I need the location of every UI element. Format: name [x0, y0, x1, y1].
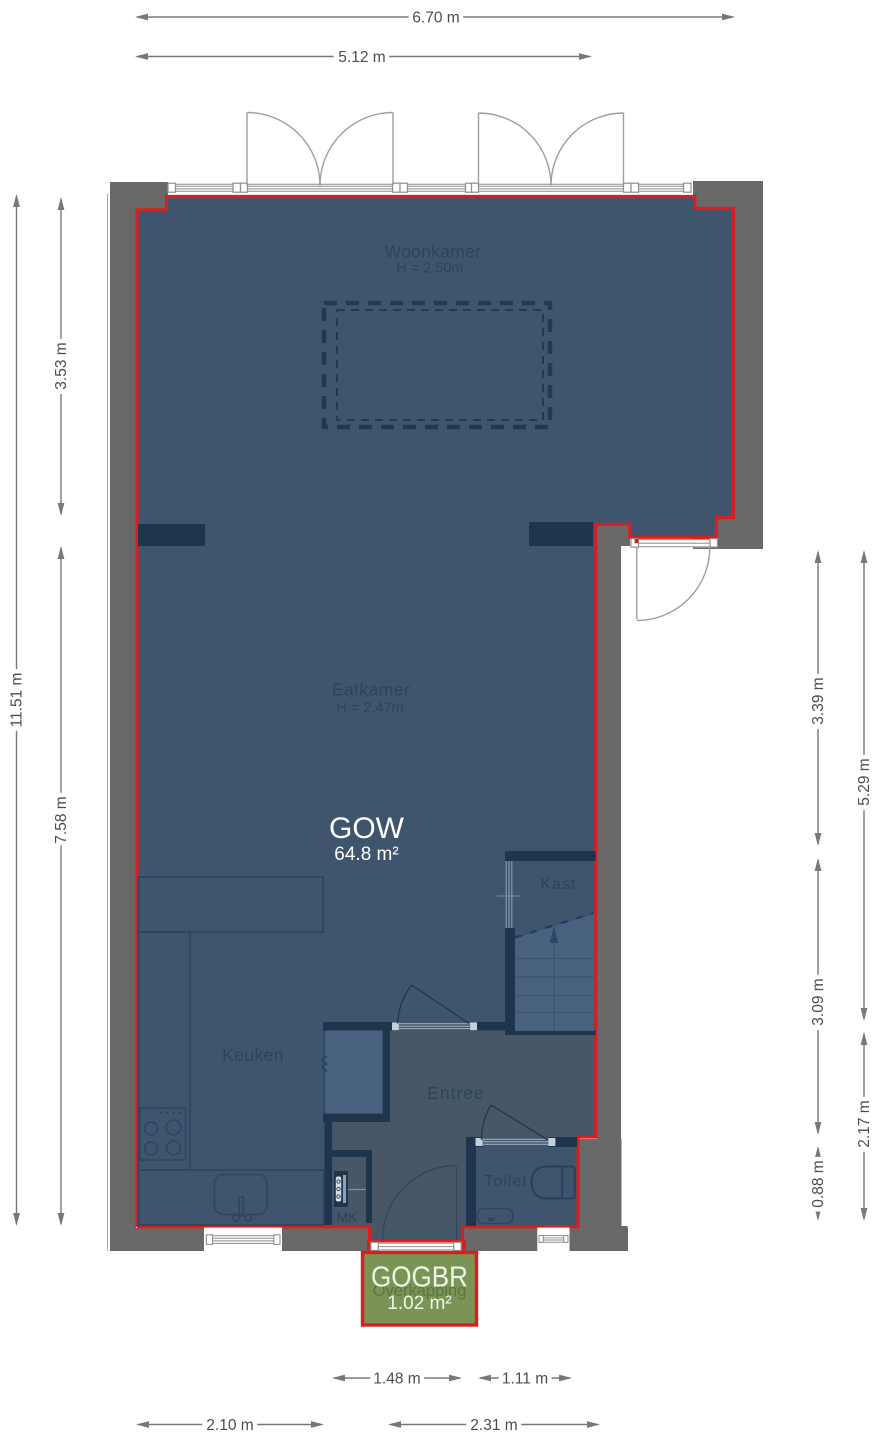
- svg-text:Kast: Kast: [540, 876, 576, 893]
- svg-text:1.11 m: 1.11 m: [502, 1371, 548, 1388]
- svg-text:2.31 m: 2.31 m: [470, 1417, 517, 1434]
- svg-text:Entree: Entree: [427, 1083, 485, 1103]
- svg-text:3.09 m: 3.09 m: [810, 978, 827, 1025]
- svg-text:Woonkamer: Woonkamer: [385, 242, 482, 262]
- svg-text:GOGBR: GOGBR: [371, 1262, 468, 1294]
- svg-text:2.17 m: 2.17 m: [856, 1100, 873, 1147]
- svg-text:11.51 m: 11.51 m: [9, 673, 26, 728]
- svg-text:Toilet: Toilet: [484, 1173, 527, 1190]
- svg-text:Eatkamer: Eatkamer: [332, 680, 410, 700]
- svg-text:5.12 m: 5.12 m: [338, 49, 385, 66]
- svg-text:1.48 m: 1.48 m: [373, 1371, 420, 1388]
- svg-text:3.39 m: 3.39 m: [810, 677, 827, 724]
- svg-text:H = 2.47m: H = 2.47m: [336, 701, 403, 717]
- svg-text:MK: MK: [337, 1209, 359, 1225]
- svg-text:Keuken: Keuken: [222, 1045, 284, 1065]
- svg-text:6.70 m: 6.70 m: [412, 10, 459, 27]
- svg-text:2.10 m: 2.10 m: [206, 1417, 253, 1434]
- svg-text:0.88 m: 0.88 m: [810, 1160, 827, 1207]
- svg-text:7.58 m: 7.58 m: [53, 796, 70, 843]
- svg-text:3.53 m: 3.53 m: [53, 342, 70, 389]
- svg-text:H = 2.50m: H = 2.50m: [396, 261, 463, 277]
- svg-text:5.29 m: 5.29 m: [856, 758, 873, 805]
- svg-text:GOW: GOW: [329, 812, 405, 845]
- svg-text:1.02 m²: 1.02 m²: [387, 1293, 451, 1314]
- svg-text:64.8 m²: 64.8 m²: [334, 844, 398, 865]
